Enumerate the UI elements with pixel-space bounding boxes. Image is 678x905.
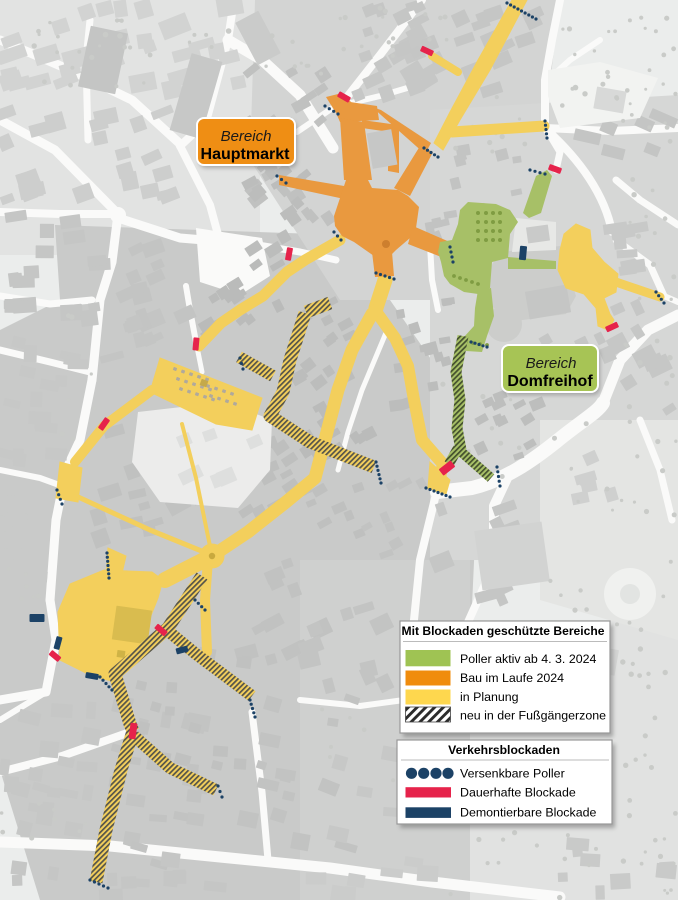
svg-text:Bereich: Bereich: [221, 128, 272, 145]
svg-text:Bau im Laufe 2024: Bau im Laufe 2024: [460, 671, 564, 685]
svg-text:Verkehrsblockaden: Verkehrsblockaden: [448, 743, 560, 757]
svg-text:Hauptmarkt: Hauptmarkt: [201, 146, 291, 163]
svg-text:Domfreihof: Domfreihof: [507, 373, 593, 390]
svg-text:Versenkbare Poller: Versenkbare Poller: [460, 767, 565, 781]
svg-text:Poller aktiv ab 4. 3. 2024: Poller aktiv ab 4. 3. 2024: [460, 652, 596, 666]
svg-text:Mit Blockaden geschützte Berei: Mit Blockaden geschützte Bereiche: [402, 624, 605, 638]
svg-text:Demontierbare Blockade: Demontierbare Blockade: [460, 806, 596, 820]
svg-text:in Planung: in Planung: [460, 690, 519, 704]
svg-text:Dauerhafte Blockade: Dauerhafte Blockade: [460, 786, 576, 800]
svg-text:Bereich: Bereich: [526, 355, 577, 372]
svg-text:neu in der Fußgängerzone: neu in der Fußgängerzone: [460, 709, 606, 723]
